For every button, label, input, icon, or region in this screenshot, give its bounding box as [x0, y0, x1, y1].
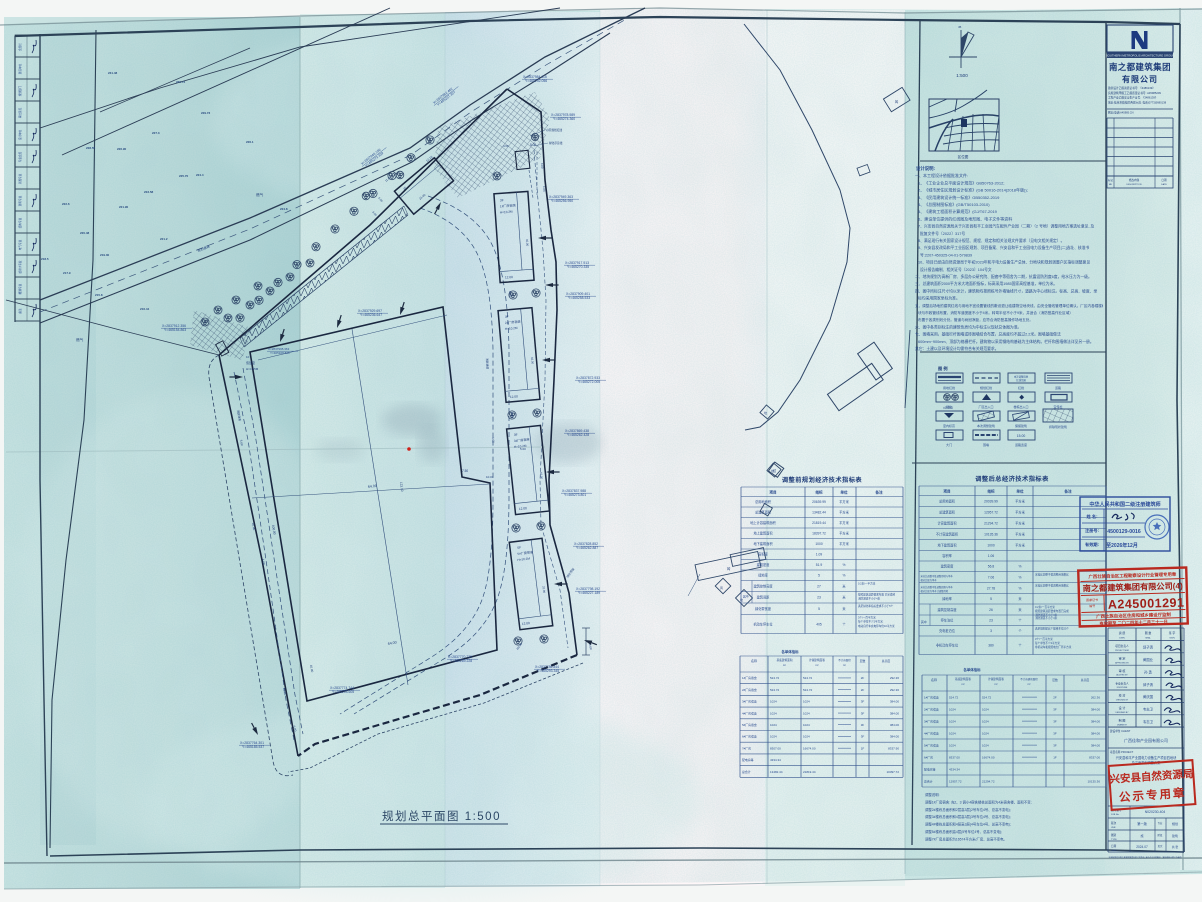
svg-text:380: 380: [988, 644, 994, 648]
svg-text:道路宽度: 道路宽度: [1015, 442, 1027, 447]
svg-text:调整4#楼栋总面积和4层高3层(4号车位4号、总高不变电);: 调整4#楼栋总面积和4层高3层(4号车位4号、总高不变电);: [925, 822, 1011, 827]
svg-text:图 章: 图 章: [1145, 630, 1152, 635]
svg-text:384.00: 384.00: [890, 735, 900, 739]
svg-text:3: 3: [990, 629, 992, 633]
svg-text:VER: VER: [1111, 827, 1116, 829]
svg-text:电气专业: 电气专业: [18, 239, 22, 250]
svg-text:3#厂房宿舍: 3#厂房宿舍: [742, 699, 757, 704]
svg-text:384.00: 384.00: [890, 700, 900, 704]
svg-text:满足规划配比个规格车位25个: 满足规划配比个规格车位25个: [1035, 627, 1069, 631]
svg-text:1000: 1000: [815, 542, 823, 546]
svg-text:1.09: 1.09: [816, 553, 823, 557]
svg-text:审 定: 审 定: [1119, 656, 1126, 661]
svg-text:拆除现状建筑: 拆除现状建筑: [1049, 424, 1067, 429]
svg-text:Y=465262.887: Y=465262.887: [576, 546, 598, 550]
svg-text:名称: 名称: [751, 658, 757, 663]
svg-text:600mm~900mm、顶部为格栅栏杆。建筑物以采用钢结构基: 600mm~900mm、顶部为格栅栏杆。建筑物以采用钢结构基础为主体结构。栏杆和…: [918, 339, 1094, 344]
svg-text:6、建设单位提供的红线图及地形图、电子文件等资料: 6、建设单位提供的红线图及地形图、电子文件等资料: [918, 215, 1012, 221]
svg-text:H=4.65M: H=4.65M: [246, 367, 259, 371]
svg-text:消防通道不小于4米: 消防通道不小于4米: [858, 597, 881, 601]
svg-text:4、《总图制图标准》(GB/T50103-2010): 4、《总图制图标准》(GB/T50103-2010): [918, 201, 990, 207]
svg-text:建设单位 CLIENT: 建设单位 CLIENT: [1110, 729, 1131, 733]
svg-text:施: 施: [1140, 833, 1143, 838]
svg-text:384.00: 384.00: [890, 711, 900, 715]
svg-text:不计容面积: 不计容面积: [838, 658, 851, 662]
svg-text:韦志卫: 韦志卫: [1143, 719, 1154, 724]
svg-text:32.00: 32.00: [525, 239, 530, 247]
svg-text:图章证书: 图章证书: [1086, 597, 1098, 602]
svg-text:0.2米/一平方米: 0.2米/一平方米: [858, 582, 876, 586]
svg-text:6#厂房宿舍: 6#厂房宿舍: [742, 734, 757, 739]
svg-text:备注: 备注: [1063, 489, 1072, 494]
svg-text:16674.00: 16674.00: [982, 755, 995, 759]
svg-text:384.00: 384.00: [1091, 707, 1101, 711]
svg-text:4#厂房宿舍: 4#厂房宿舍: [924, 730, 939, 735]
svg-text:3个/一百平方米: 3个/一百平方米: [1035, 637, 1053, 641]
svg-text:%: %: [1019, 575, 1022, 579]
svg-text:10.01: 10.01: [486, 475, 494, 479]
svg-text:孙 勇: 孙 勇: [1144, 669, 1152, 674]
svg-text:56.8: 56.8: [988, 565, 995, 569]
svg-text:项目负责人: 项目负责人: [1115, 644, 1129, 648]
svg-text:三、总建筑面积2000平方米大地面积指标，标高采用1985国: 三、总建筑面积2000平方米大地面积指标，标高采用1985国家高程基准，单位为米…: [915, 281, 1057, 286]
svg-text:TYPE: TYPE: [1111, 839, 1117, 841]
svg-text:5: 5: [990, 597, 992, 601]
svg-text:调整5#楼栋总面积高4层(5号车位4号、总高不变电);: 调整5#楼栋总面积高4层(5号车位4号、总高不变电);: [925, 829, 1002, 834]
svg-text:5#厂房宿舍: 5#厂房宿舍: [924, 742, 939, 747]
svg-text:8337.90: 8337.90: [888, 746, 899, 750]
svg-text:Y=465292.056: Y=465292.056: [525, 79, 547, 83]
svg-text:平方米: 平方米: [1015, 498, 1025, 503]
svg-text:充电桩泊位: 充电桩泊位: [939, 628, 956, 633]
svg-text:平方米: 平方米: [1015, 542, 1025, 547]
svg-text:45: 45: [958, 25, 962, 29]
svg-text:电动自行车充电停车位10平方米: 电动自行车充电停车位10平方米: [858, 624, 895, 628]
svg-text:4500129-0016: 4500129-0016: [1107, 529, 1141, 535]
svg-text:Y=465274.360: Y=465274.360: [553, 117, 575, 121]
svg-text:机动车停车位: 机动车停车位: [753, 621, 773, 626]
svg-text:注册号:: 注册号:: [1085, 527, 1099, 534]
svg-text:226.90: 226.90: [117, 147, 127, 151]
svg-text:单位: 单位: [1016, 489, 1024, 494]
svg-text:1024: 1024: [949, 743, 956, 747]
svg-text:兴安县和平产业园电力设备生产项目四地块: 兴安县和平产业园电力设备生产项目四地块: [1116, 755, 1177, 760]
svg-text:2、《城市居住区规划设计标准》(GB 50016-2014(: 2、《城市居住区规划设计标准》(GB 50016-2014(2018年版));: [918, 187, 1028, 193]
svg-text:燃气: 燃气: [76, 337, 84, 342]
svg-text:四、图中所标注尺寸均以米计，建筑物均按照栋号外墙轴线尺寸，道: 四、图中所标注尺寸均以米计，建筑物均按照栋号外墙轴线尺寸，道路为中心线标注。标高…: [915, 288, 1097, 293]
svg-text:号:2207-450325-04-01-579839: 号:2207-450325-04-01-579839: [920, 252, 972, 257]
svg-text:1024: 1024: [770, 723, 777, 727]
svg-text:调整3#楼栋总面积和4层高3层(3号车位4号、总高不变电);: 调整3#楼栋总面积和4层高3层(3号车位4号、总高不变电);: [925, 814, 1011, 819]
svg-text:平方米: 平方米: [839, 531, 849, 536]
svg-text:厂区出入口: 厂区出入口: [978, 404, 993, 409]
svg-text:米挂比调整不低调整用地相比: 米挂比调整不低调整用地相比: [1035, 584, 1069, 588]
svg-text:1024: 1024: [949, 707, 956, 711]
svg-text:SIGN: SIGN: [1169, 638, 1175, 640]
svg-text:1000: 1000: [987, 543, 995, 547]
svg-text:15.00: 15.00: [1017, 434, 1026, 438]
svg-text:道路: 道路: [1055, 385, 1061, 390]
svg-text:3F: 3F: [500, 198, 504, 202]
svg-text:Y=465168.836: Y=465168.836: [270, 351, 290, 355]
svg-text:Y=465273.801: Y=465273.801: [564, 493, 586, 497]
svg-text:签 字: 签 字: [1169, 630, 1176, 635]
svg-text:区位图: 区位图: [958, 154, 969, 159]
svg-text:3F: 3F: [861, 711, 865, 715]
svg-text:221.90: 221.90: [119, 205, 129, 209]
svg-text:224.8: 224.8: [280, 207, 288, 211]
svg-text:有限公司: 有限公司: [1122, 74, 1158, 84]
svg-text:不计容建筑面积: 不计容建筑面积: [936, 531, 959, 536]
svg-text:二、地块规划为高新厂房、多层办公研究院、配套中等宿舍为二期，: 二、地块规划为高新厂房、多层办公研究院、配套中等宿舍为二期，抗震设防烈度6度，给…: [915, 274, 1092, 279]
svg-text:1024: 1024: [982, 707, 989, 711]
svg-text:2024.07: 2024.07: [1136, 845, 1148, 849]
svg-text:楼栋出入口: 楼栋出入口: [1013, 404, 1028, 409]
svg-text:222.6: 222.6: [62, 202, 70, 206]
svg-text:设计说明:: 设计说明:: [916, 165, 936, 172]
svg-text:1#厂房宿舍: 1#厂房宿舍: [742, 675, 757, 680]
svg-text:保留建筑: 保留建筑: [1015, 423, 1027, 428]
svg-text:调整1#厂房宿舍: 充2、3 调小4宿舍楼栋总面积为4米宿舍: 调整1#厂房宿舍: 充2、3 调小4宿舍楼栋总面积为4米宿舍楼、面积不变;: [925, 799, 1032, 804]
svg-text:1024: 1024: [949, 719, 956, 723]
svg-text:231.48: 231.48: [108, 71, 118, 75]
svg-text:8307.00: 8307.00: [770, 746, 781, 750]
svg-text:8、满足现行有关国家设计规范、规程、规定和相关法规文件要求（: 8、满足现行有关国家设计规范、规程、规定和相关法规文件要求（见电文相关规定）。: [918, 238, 1064, 243]
svg-text:非机动车和按照电力厂符平方米: 非机动车和按照电力厂符平方米: [1035, 645, 1072, 649]
svg-text:布置于各类别划分处。管道与树冠净距，应符合消防登高操作场地五: 布置于各类别划分处。管道与树冠净距，应符合消防登高操作场地五处。: [918, 317, 1033, 322]
svg-text:地下建筑面积: 地下建筑面积: [937, 542, 957, 547]
svg-text:中华人民共和国二级注册建筑师: 中华人民共和国二级注册建筑师: [1089, 501, 1160, 508]
svg-text:1024: 1024: [770, 735, 777, 739]
svg-text:1024: 1024: [982, 743, 989, 747]
svg-text:总建筑面积: 总建筑面积: [939, 509, 956, 514]
svg-text:20639.99: 20639.99: [812, 500, 826, 504]
svg-text:建筑密度: 建筑密度: [757, 562, 771, 567]
svg-text:其中: 其中: [921, 620, 927, 624]
svg-text:1024: 1024: [803, 735, 810, 739]
svg-text:各单体指标: 各单体指标: [781, 649, 800, 654]
svg-text:2F: 2F: [861, 688, 865, 692]
svg-text:总高度: 总高度: [1081, 678, 1090, 682]
svg-text:绿化带宽度: 绿化带宽度: [755, 606, 772, 611]
svg-text:Y=465258.533: Y=465258.533: [568, 296, 590, 300]
svg-text:黄庆国: 黄庆国: [1143, 694, 1154, 699]
svg-text:1F: 1F: [246, 355, 250, 359]
svg-text:3F: 3F: [514, 433, 518, 437]
svg-text:292.36: 292.36: [890, 688, 900, 692]
svg-text:1024: 1024: [803, 723, 810, 727]
svg-text:524.72: 524.72: [982, 695, 992, 699]
svg-text:27.78: 27.78: [987, 586, 995, 590]
svg-text:1024: 1024: [982, 719, 989, 723]
svg-text:%: %: [1019, 565, 1022, 569]
svg-text:1F: 1F: [861, 746, 865, 750]
svg-text:4#厂房宿舍: 4#厂房宿舍: [742, 710, 757, 715]
svg-text:规划: 规划: [1172, 821, 1178, 826]
svg-text:18397.72: 18397.72: [812, 532, 826, 536]
svg-text:1024: 1024: [803, 711, 810, 715]
svg-text:各单体指标: 各单体指标: [963, 667, 982, 672]
svg-text:292.36: 292.36: [890, 676, 900, 680]
svg-text:容积率: 容积率: [758, 552, 768, 557]
svg-text:m²: m²: [1028, 683, 1031, 686]
svg-text:建筑控制高度: 建筑控制高度: [937, 607, 957, 612]
svg-text:10、项目已经由自然资源局于年初2023年和平电力设备生产总: 10、项目已经由自然资源局于年初2023年和平电力设备生产总体、分地块和规划调整…: [918, 260, 1090, 265]
svg-text:384.00: 384.00: [890, 723, 900, 727]
svg-text:Y=465256.950: Y=465256.950: [551, 199, 573, 203]
svg-text:3F: 3F: [1053, 719, 1057, 723]
svg-text:黄国业: 黄国业: [1143, 657, 1154, 662]
svg-text:216.44: 216.44: [140, 307, 150, 311]
svg-text:总合计: 总合计: [924, 778, 933, 783]
svg-text:其它：土建以及环境设计均需符合有关规范要求。: 其它：土建以及环境设计均需符合有关规范要求。: [915, 346, 999, 351]
svg-text:工程产业乙级安全生产证号: 《3486139》: 工程产业乙级安全生产证号: 《3486139》: [1108, 96, 1158, 100]
svg-text:10397.72: 10397.72: [886, 770, 899, 774]
svg-text:计容建筑面积: 计容建筑面积: [988, 677, 1004, 681]
svg-text:3F: 3F: [1053, 707, 1057, 711]
svg-text:219.30: 219.30: [100, 253, 110, 257]
svg-text:2F: 2F: [861, 676, 865, 680]
svg-text:1#厂房宿舍: 1#厂房宿舍: [924, 694, 939, 699]
svg-text:8.00: 8.00: [508, 291, 513, 297]
svg-text:层数: 层数: [1052, 678, 1058, 682]
svg-text:16674.00: 16674.00: [803, 746, 816, 750]
svg-text:名称: 名称: [931, 677, 937, 682]
svg-text:m²: m²: [783, 664, 786, 667]
svg-text:修改内容: 修改内容: [1129, 178, 1140, 182]
svg-text:405: 405: [816, 622, 822, 626]
svg-text:3F: 3F: [1053, 743, 1057, 747]
svg-text:524.72: 524.72: [949, 695, 959, 699]
svg-text:广西佳和产业园有限公司: 广西佳和产业园有限公司: [1124, 737, 1168, 743]
svg-text:220.48: 220.48: [80, 231, 90, 235]
svg-text:2F: 2F: [1053, 695, 1057, 699]
svg-text:PROJECT MGR: PROJECT MGR: [1115, 650, 1129, 652]
svg-text:建筑密度: 建筑密度: [941, 564, 955, 569]
svg-text:7.50: 7.50: [462, 469, 468, 473]
svg-text:绿地率: 绿地率: [758, 573, 768, 578]
svg-text:至2026年12月: 至2026年12月: [1106, 542, 1138, 549]
svg-text:3#厂房宿舍: 3#厂房宿舍: [924, 718, 939, 723]
svg-text:燃气: 燃气: [256, 192, 264, 197]
svg-text:32.00: 32.00: [539, 472, 544, 480]
svg-text:红线范围: 红线范围: [1016, 378, 1026, 382]
svg-text:23: 23: [817, 596, 821, 600]
svg-text:项目: 项目: [769, 490, 777, 495]
svg-text:一、本工程设计依据批准文件:: 一、本工程设计依据批准文件:: [915, 172, 968, 178]
svg-text:Y=465236.647: Y=465236.647: [360, 313, 382, 317]
svg-text:DESCRIPTION: DESCRIPTION: [1127, 184, 1142, 186]
svg-text:批复文件号〔2022〕317号: 批复文件号〔2022〕317号: [920, 231, 965, 236]
svg-text:524.72: 524.72: [803, 676, 813, 680]
svg-text:暖通专业: 暖通专业: [18, 283, 22, 294]
svg-text:21294.72: 21294.72: [984, 521, 998, 525]
svg-text:规划总平面图 1:500: 规划总平面图 1:500: [382, 809, 501, 823]
svg-text:设计单位: 设计单位: [18, 129, 22, 140]
svg-text:8.00: 8.00: [510, 412, 515, 418]
svg-text:资 质: 资 质: [1119, 630, 1126, 635]
svg-text:共 张: 共 张: [1172, 845, 1179, 849]
svg-text:层数: 层数: [860, 659, 866, 663]
svg-text:调整7#厂房总面积为16574平方米/厂房、总高不变电。: 调整7#厂房总面积为16574平方米/厂房、总高不变电。: [925, 836, 1007, 841]
svg-text:小区规划红线: 小区规划红线: [546, 128, 562, 132]
svg-text:会签栏: 会签栏: [18, 43, 22, 51]
svg-text:不计容建筑面积: 不计容建筑面积: [1020, 677, 1038, 681]
svg-text:配电房等: 配电房等: [924, 766, 936, 771]
svg-text:建筑间距: 建筑间距: [757, 595, 771, 600]
svg-text:每个单位不少2平方米: 每个单位不少2平方米: [1035, 641, 1060, 645]
svg-text:调整前规划经济技术指标表: 调整前规划经济技术指标表: [782, 476, 863, 484]
svg-text:1024: 1024: [803, 700, 810, 704]
svg-text:2#厂房宿舍: 2#厂房宿舍: [924, 706, 939, 711]
svg-text:Y=465272.005: Y=465272.005: [578, 380, 600, 384]
svg-text:13482.44: 13482.44: [812, 511, 826, 515]
svg-text:3F: 3F: [861, 723, 865, 727]
svg-text:用地红线: 用地红线: [943, 385, 955, 390]
svg-text:邱子清: 邱子清: [1143, 682, 1154, 687]
svg-text:总合计: 总合计: [742, 769, 751, 774]
svg-text:建筑: 建筑: [1172, 833, 1178, 838]
svg-text:DRAWN BY: DRAWN BY: [1117, 723, 1128, 726]
svg-text:满足绿化率指标要求不小于5个: 满足绿化率指标要求不小于5个: [858, 604, 894, 608]
svg-text:七、围墙采用，基础栏杆围墙或砖围墙结合布置，总高度均不超过2: 七、围墙采用，基础栏杆围墙或砖围墙结合布置，总高度均不超过2.2米。围墙基础做法: [915, 332, 1061, 337]
svg-text:m²: m²: [815, 664, 818, 667]
svg-text:1、《工业企业总平面设计规范》GB50763-2012;: 1、《工业企业总平面设计规范》GB50763-2012;: [918, 179, 1004, 185]
svg-text:专业: 专业: [1158, 821, 1163, 825]
svg-text:5#厂房宿舍: 5#厂房宿舍: [742, 722, 757, 727]
svg-text:消防通道: 消防通道: [485, 358, 490, 370]
svg-text:版次: 版次: [1111, 821, 1117, 825]
svg-text:4334.34: 4334.34: [949, 767, 960, 771]
svg-text:非机动车停车位: 非机动车停车位: [936, 643, 959, 648]
svg-text:384.00: 384.00: [1091, 743, 1101, 747]
svg-text:APPROVED BY: APPROVED BY: [1115, 661, 1129, 664]
svg-text:标均采用国家坐标为准。: 标均采用国家坐标为准。: [918, 296, 960, 301]
svg-text:20039.99: 20039.99: [984, 499, 998, 503]
svg-text:绿化示意线: 绿化示意线: [549, 141, 563, 145]
svg-text:地上计容建筑面积: 地上计容建筑面积: [750, 520, 776, 525]
svg-text:审批意见: 审批意见: [18, 107, 22, 118]
svg-text:DWN: DWN: [1119, 638, 1125, 640]
svg-text:3、《民用建筑设计统一标准》GB50352-2019: 3、《民用建筑设计统一标准》GB50352-2019: [918, 194, 1000, 200]
svg-text:32.00: 32.00: [530, 357, 535, 365]
svg-text:备注: 备注: [874, 490, 883, 495]
svg-text:DATE: DATE: [1111, 849, 1117, 852]
svg-text:设计报告编制、相关证号〔2023〕104号文: 设计报告编制、相关证号〔2023〕104号文: [920, 267, 992, 272]
svg-text:262.36: 262.36: [1091, 695, 1101, 699]
svg-text:DISCIPLINE: DISCIPLINE: [1117, 687, 1128, 689]
svg-text:Y=465154.863: Y=465154.863: [164, 328, 186, 332]
svg-text:平方米: 平方米: [1015, 531, 1025, 536]
svg-text:项目名称 PROJECT: 项目名称 PROJECT: [1110, 750, 1134, 754]
svg-text:调整2#楼栋总面积和2层高3层(2号车位4号、总高不变电);: 调整2#楼栋总面积和2层高3层(2号车位4号、总高不变电);: [925, 807, 1011, 812]
svg-text:停车泊位: 停车泊位: [941, 618, 955, 623]
svg-text:平方米: 平方米: [839, 541, 849, 546]
svg-text:总用地面积: 总用地面积: [755, 499, 772, 504]
svg-text:5: 5: [818, 607, 820, 611]
svg-text:5F: 5F: [517, 546, 521, 550]
svg-text:规划红线: 规划红线: [980, 385, 992, 390]
svg-text:m²: m²: [961, 683, 964, 686]
svg-text:12.00: 12.00: [519, 506, 528, 511]
svg-text:房屋建筑甲级工乙级质量证书号: A45985209: 房屋建筑甲级工乙级质量证书号: A45985209: [1108, 91, 1161, 95]
svg-text:A245001291: A245001291: [1108, 596, 1185, 612]
svg-text:±0.000: ±0.000: [943, 406, 953, 410]
svg-text:3F: 3F: [861, 700, 865, 704]
svg-text:Y=465269.228: Y=465269.228: [450, 659, 472, 663]
svg-text:本次调整建筑: 本次调整建筑: [977, 423, 995, 428]
svg-text:4334.34: 4334.34: [770, 758, 781, 762]
svg-text:DESIGNED BY: DESIGNED BY: [1116, 712, 1130, 714]
svg-text:专业会签: 专业会签: [18, 151, 22, 162]
svg-text:建筑专业: 建筑专业: [18, 195, 22, 206]
svg-text:制 图: 制 图: [1119, 718, 1126, 723]
svg-text:6#厂房: 6#厂房: [924, 754, 933, 759]
svg-text:2#厂房宿舍: 2#厂房宿舍: [742, 687, 757, 692]
svg-text:384.00: 384.00: [1091, 731, 1101, 735]
svg-text:1024: 1024: [770, 700, 777, 704]
svg-text:备注: 备注: [18, 308, 22, 314]
svg-text:DATE: DATE: [1161, 183, 1167, 186]
svg-text:CHECKED BY: CHECKED BY: [1116, 700, 1129, 702]
svg-text:9、兴安县发改局和平工业园区规划、项目备案、兴安县和平工业园: 9、兴安县发改局和平工业园区规划、项目备案、兴安县和平工业园电力设备生产项目[二…: [918, 245, 1089, 250]
svg-text:姓 名:: 姓 名:: [1086, 513, 1098, 520]
svg-text:1F: 1F: [1053, 755, 1057, 759]
svg-text:平方米: 平方米: [839, 520, 849, 525]
svg-text:228.55: 228.55: [86, 146, 96, 150]
svg-text:7.06: 7.06: [988, 575, 995, 579]
svg-text:524.72: 524.72: [770, 688, 780, 692]
svg-text:总用地面积: 总用地面积: [939, 498, 956, 503]
svg-text:勘察设计乙级资质证书号: 《3486139》: 勘察设计乙级资质证书号: 《3486139》: [1108, 86, 1155, 90]
svg-text:%: %: [843, 563, 846, 567]
svg-text:红线: 红线: [1018, 385, 1024, 390]
svg-text:218.5: 218.5: [41, 257, 49, 261]
svg-text:阶段: 阶段: [1158, 833, 1163, 837]
svg-text:JOB No.: JOB No.: [1111, 814, 1120, 816]
svg-text:Y=465262.428: Y=465262.428: [567, 433, 589, 437]
svg-text:%: %: [843, 574, 846, 578]
svg-text:地下建筑面积: 地下建筑面积: [753, 541, 773, 546]
svg-text:23: 23: [989, 619, 993, 623]
svg-text:调整说明:: 调整说明:: [925, 792, 940, 797]
svg-text:51.9: 51.9: [816, 563, 823, 567]
svg-text:12957.72: 12957.72: [949, 779, 962, 783]
svg-text:MK: MK: [1109, 184, 1113, 186]
svg-text:配电房等: 配电房等: [742, 757, 754, 762]
svg-text:米挂比调整不低调整用地相比: 米挂比调整不低调整用地相比: [1035, 573, 1069, 577]
svg-text:384.00: 384.00: [1091, 719, 1101, 723]
svg-text:大门: 大门: [946, 442, 952, 447]
svg-text:绿地率: 绿地率: [942, 596, 952, 601]
svg-text:12.00: 12.00: [510, 394, 519, 399]
svg-text:1:500: 1:500: [956, 73, 968, 78]
svg-text:调整后总经济技术指标表: 调整后总经济技术指标表: [975, 475, 1049, 483]
svg-text:韦志卫: 韦志卫: [1143, 707, 1154, 712]
svg-text:容积率: 容积率: [942, 553, 952, 558]
svg-text:消防通道不小于4米: 消防通道不小于4米: [1035, 616, 1058, 620]
svg-text:SEAL: SEAL: [1145, 637, 1151, 640]
svg-text:坟: 坟: [764, 410, 767, 415]
svg-text:平方米: 平方米: [1015, 520, 1025, 525]
svg-text:21294.72: 21294.72: [982, 779, 995, 783]
svg-text:Y=465270.335: Y=465270.335: [567, 265, 589, 269]
svg-text:SOUTHERN METROPOLIS ARCHITECTU: SOUTHERN METROPOLIS ARCHITECTURE GROUP: [1106, 53, 1175, 57]
svg-text:页次: 页次: [1158, 844, 1163, 848]
svg-text:225.70: 225.70: [179, 174, 189, 178]
svg-text:1024: 1024: [770, 711, 777, 715]
svg-text:按照建筑退距要求布置已完成: 按照建筑退距要求布置已完成: [1035, 609, 1069, 613]
